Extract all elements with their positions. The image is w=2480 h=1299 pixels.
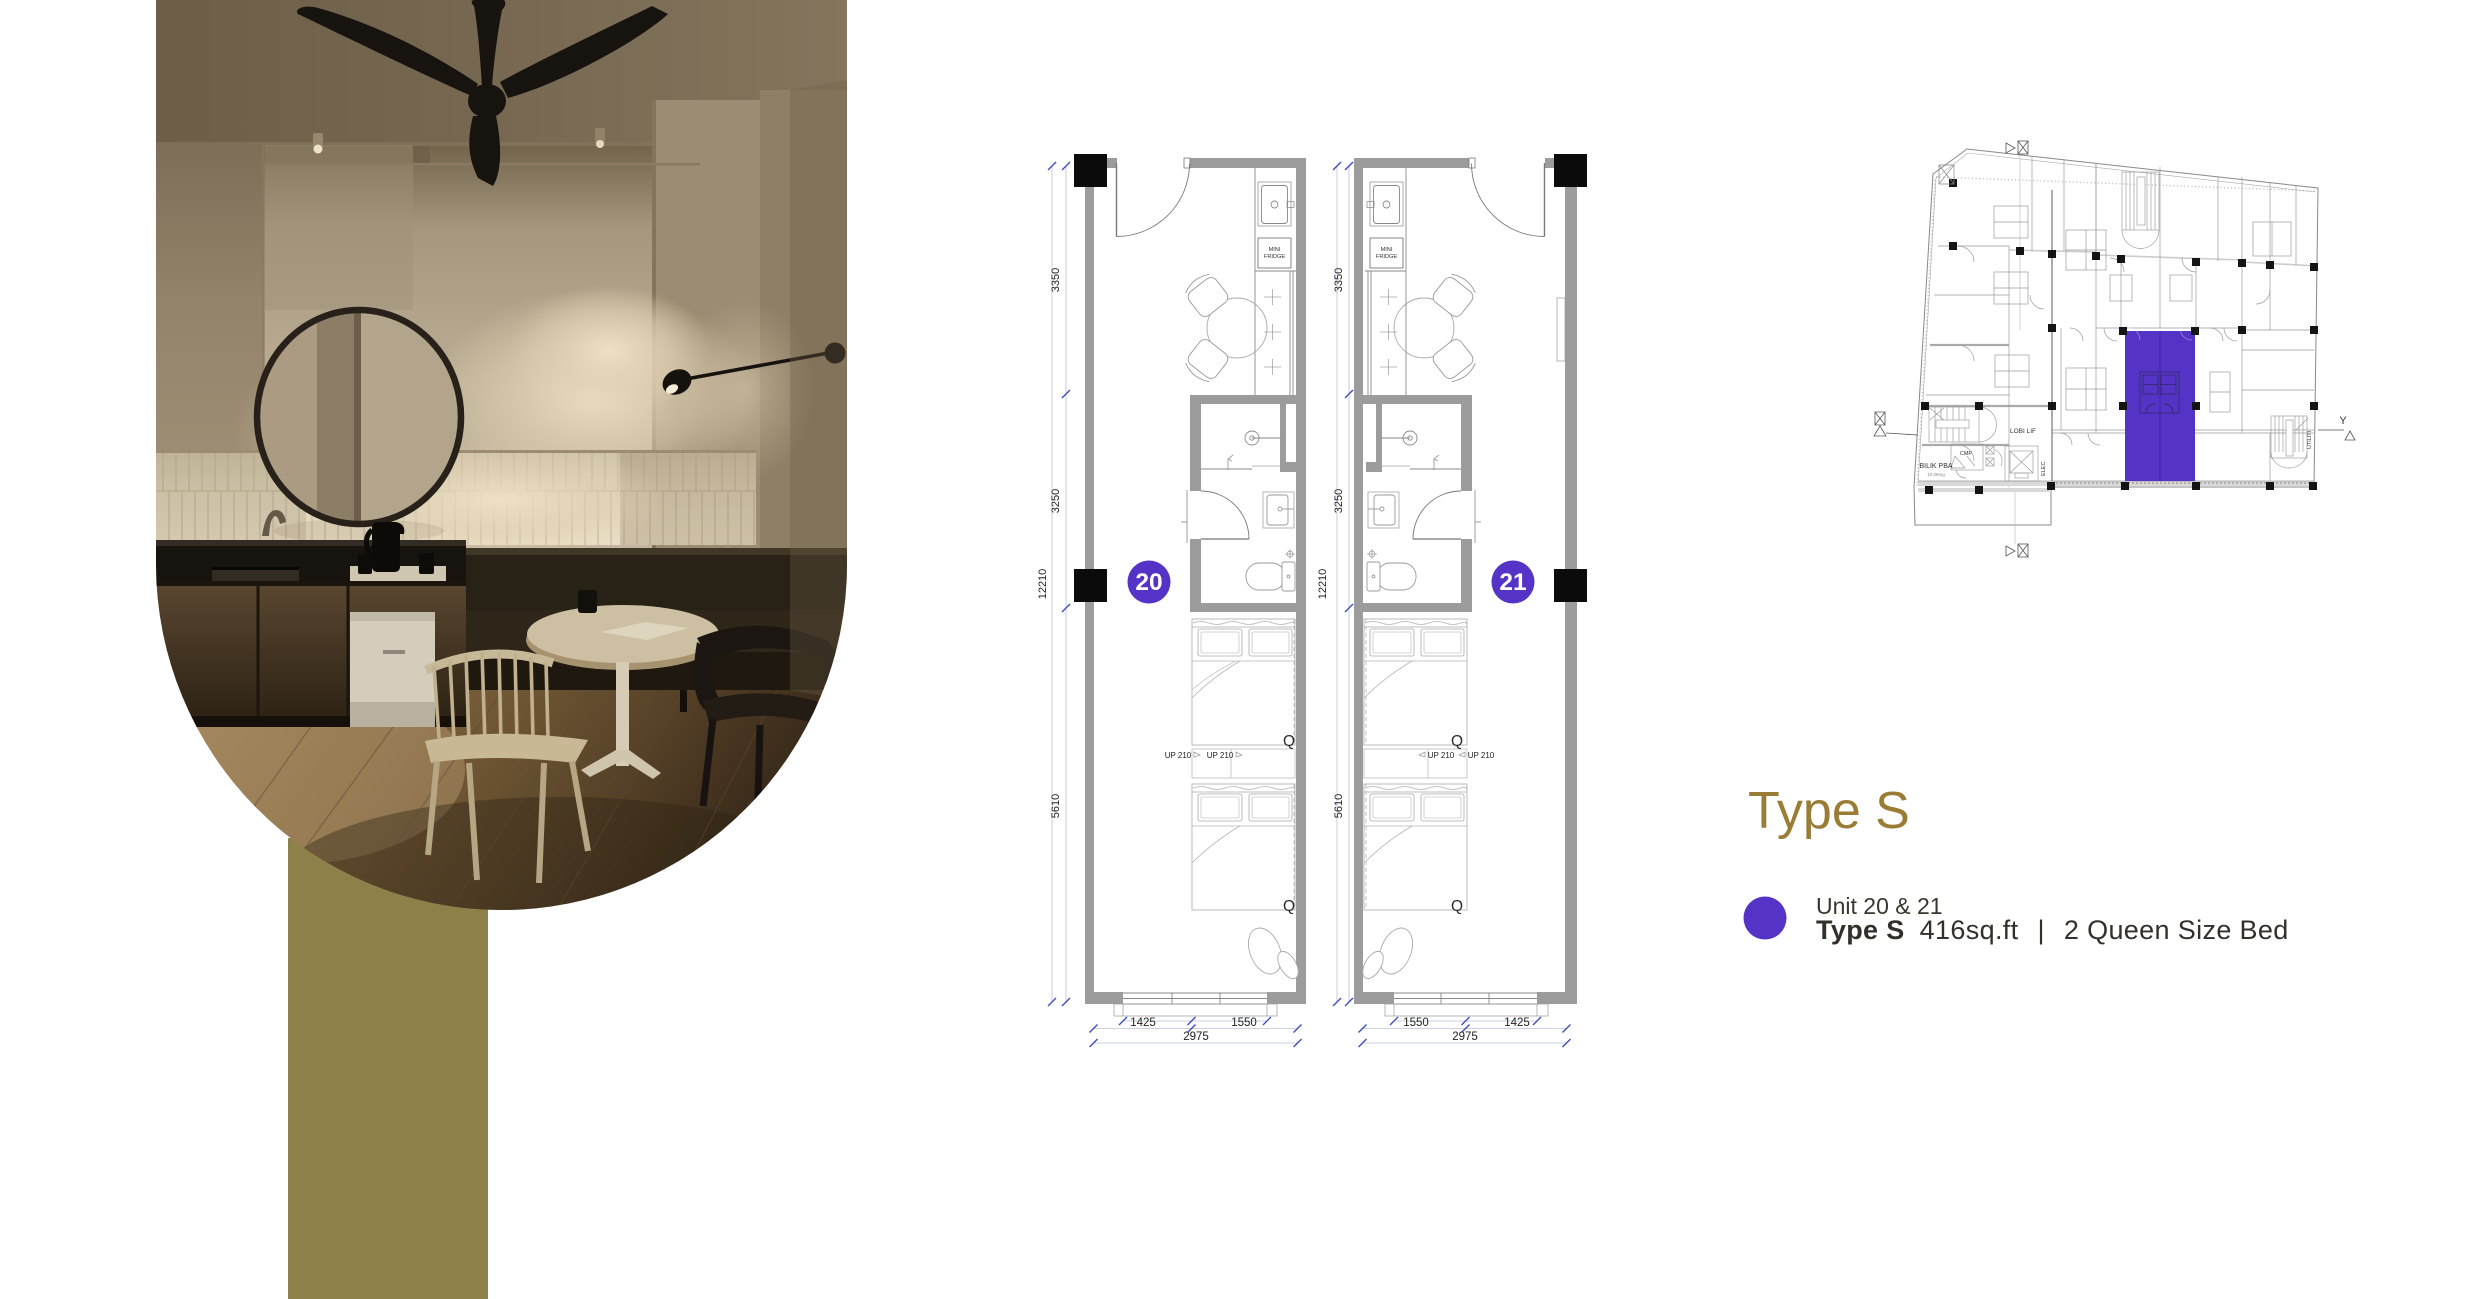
svg-text:ELEC.: ELEC. [2041, 460, 2047, 476]
svg-text:2975: 2975 [1183, 1031, 1209, 1043]
svg-text:UP 210: UP 210 [1207, 751, 1234, 760]
svg-text:Q: Q [1283, 733, 1295, 750]
svg-text:MINI: MINI [1381, 247, 1393, 253]
svg-text:10.06mg: 10.06mg [1927, 472, 1945, 477]
svg-text:3250: 3250 [1333, 489, 1345, 513]
svg-text:UP 210: UP 210 [1468, 751, 1495, 760]
svg-text:BILIK PBA: BILIK PBA [1919, 463, 1952, 470]
svg-text:MINI: MINI [1269, 247, 1281, 253]
svg-text:12210: 12210 [1037, 569, 1049, 600]
svg-text:Q: Q [1283, 898, 1295, 915]
svg-text:1425: 1425 [1130, 1017, 1156, 1029]
svg-text:Q: Q [1451, 733, 1463, 750]
svg-text:Type S416sq.ft|2 Queen Size Be: Type S416sq.ft|2 Queen Size Bed [1816, 915, 2289, 945]
svg-text:3350: 3350 [1050, 268, 1062, 292]
svg-text:Y: Y [2339, 415, 2347, 427]
svg-text:FRIDGE: FRIDGE [1376, 254, 1397, 260]
svg-text:2975: 2975 [1452, 1031, 1478, 1043]
svg-text:12210: 12210 [1317, 569, 1329, 600]
svg-text:LOBI LIF: LOBI LIF [2010, 428, 2036, 435]
svg-text:5610: 5610 [1050, 794, 1062, 818]
svg-text:CMP: CMP [1960, 451, 1973, 457]
svg-text:5610: 5610 [1333, 794, 1345, 818]
svg-text:21: 21 [1499, 569, 1526, 596]
svg-text:FRIDGE: FRIDGE [1264, 254, 1285, 260]
svg-text:Type S: Type S [1748, 782, 1910, 840]
svg-text:UP 210: UP 210 [1165, 751, 1192, 760]
svg-text:UP 210: UP 210 [1428, 751, 1455, 760]
svg-text:20: 20 [1135, 569, 1162, 596]
svg-text:3350: 3350 [1333, 268, 1345, 292]
svg-text:Q: Q [1451, 898, 1463, 915]
svg-text:1550: 1550 [1403, 1017, 1429, 1029]
svg-text:3250: 3250 [1050, 489, 1062, 513]
svg-text:UTILITI: UTILITI [2307, 430, 2313, 449]
svg-text:1425: 1425 [1504, 1017, 1530, 1029]
svg-text:1550: 1550 [1231, 1017, 1257, 1029]
